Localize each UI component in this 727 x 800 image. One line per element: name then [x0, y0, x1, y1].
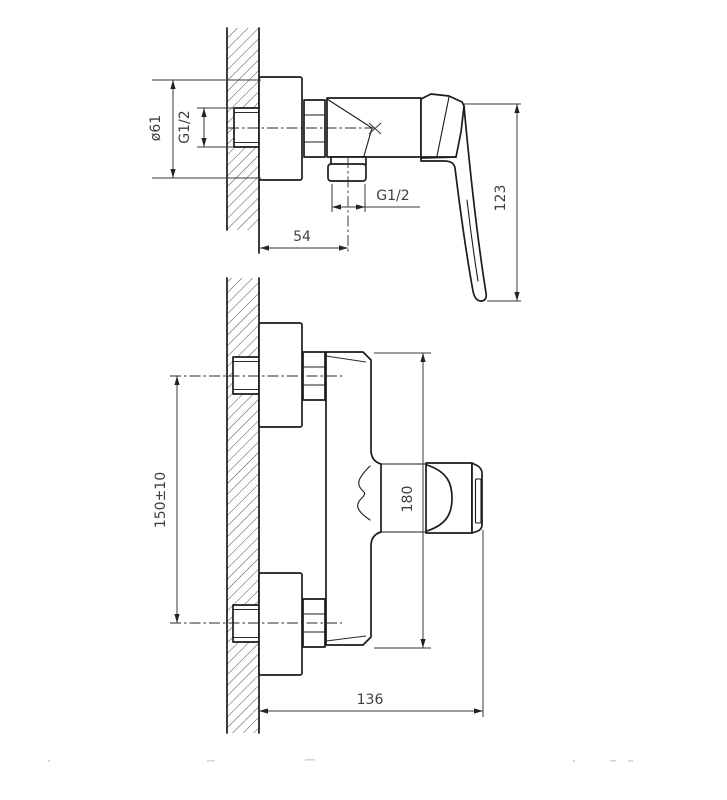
scan-artifacts [48, 759, 633, 762]
dim-label-wall-to-outlet: 54 [293, 229, 311, 245]
mixer-body [327, 98, 421, 157]
lower-inlet-pipe [233, 605, 259, 642]
dim-label-flange-diameter: ø61 [148, 115, 164, 141]
dim-label-outlet-thread: G1/2 [376, 188, 409, 204]
dim-label-overall-depth: 136 [357, 692, 384, 708]
drawing-canvas: ø61 G1/2 54 G1/2 [0, 0, 727, 800]
side-view: ø61 G1/2 54 G1/2 [148, 28, 521, 301]
handle-cap [421, 94, 464, 157]
front-view: 150±10 180 136 [153, 278, 483, 733]
dimension-inlet-spacing: 150±10 [153, 376, 180, 623]
connector-nut [304, 100, 325, 157]
lower-escutcheon-flange [259, 573, 302, 675]
inlet-pipe [234, 108, 259, 147]
dim-label-handle-drop: 123 [493, 185, 509, 212]
dimension-inlet-thread: G1/2 [177, 108, 234, 147]
dimension-wall-to-outlet: 54 [260, 229, 348, 251]
dimension-body-height: 180 [374, 353, 431, 648]
mixer-body [326, 352, 381, 645]
upper-escutcheon-flange [259, 323, 302, 427]
dim-label-inlet-thread: G1/2 [177, 110, 193, 143]
dim-label-inlet-spacing: 150±10 [153, 472, 169, 528]
dimension-outlet-thread: G1/2 [332, 184, 420, 212]
escutcheon-flange [259, 77, 302, 180]
shower-mixer-technical-drawing: ø61 G1/2 54 G1/2 [0, 0, 727, 800]
upper-inlet-pipe [233, 357, 259, 394]
wall-hatching [227, 278, 259, 733]
handle-knob [426, 463, 482, 533]
dim-label-body-height: 180 [400, 486, 416, 513]
outlet-spout [328, 157, 366, 181]
